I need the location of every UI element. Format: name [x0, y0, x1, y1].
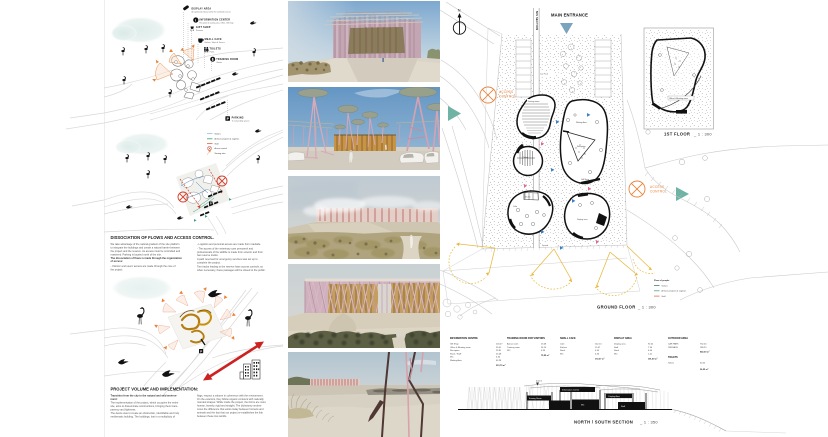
svg-text:The implementation of the proj: The implementation of the project, which… [111, 401, 179, 405]
svg-text:ment:: ment: [111, 397, 118, 401]
svg-text:Two tracks leading to the rese: Two tracks leading to the reserve have a… [197, 265, 264, 269]
svg-text:Waiting Area: Waiting Area [576, 121, 588, 124]
svg-text:Reception: Reception [577, 145, 586, 148]
svg-text:54.10: 54.10 [541, 347, 547, 349]
svg-text:25.08: 25.08 [496, 353, 502, 355]
svg-text:CONTROL: CONTROL [499, 95, 516, 99]
svg-text:two reserve tracks.: two reserve tracks. [197, 253, 219, 257]
svg-text:INFORMATION CENTER: INFORMATION CENTER [200, 19, 231, 22]
svg-text:- The access of the veterinary: - The access of the veterinary care pers… [197, 246, 254, 250]
svg-text:PROJECT VOLUME AND IMPLEMENTAT: PROJECT VOLUME AND IMPLEMENTATION: [111, 387, 199, 392]
svg-text:ACCESS: ACCESS [499, 90, 513, 94]
svg-text:Reception: Reception [450, 349, 460, 352]
svg-text:A path reserved for emergency: A path reserved for emergency services w… [197, 257, 258, 261]
svg-text:The dissociation of flows is m: The dissociation of flows is made throug… [111, 256, 183, 260]
svg-text:CAR PARK: CAR PARK [668, 343, 679, 346]
svg-text:732.00: 732.00 [700, 344, 707, 346]
svg-text:172,37 m²: 172,37 m² [595, 357, 605, 360]
svg-text:Spread: Spread [542, 244, 548, 247]
svg-text:Visitors: Visitors [216, 61, 222, 64]
svg-text:75,55 m²: 75,55 m² [541, 354, 550, 357]
svg-text:Animal caregivers & Logistics: Animal caregivers & Logistics [215, 138, 240, 141]
svg-text:Training room: Training room [507, 346, 520, 349]
svg-text:19.47: 19.47 [595, 347, 601, 349]
svg-text:emblematic building. The build: emblematic building. The buildings, lost… [111, 415, 176, 419]
svg-text:SMALL CAFE: SMALL CAFE [560, 337, 576, 340]
svg-text:mastered. Parking is located n: mastered. Parking is located north of th… [111, 252, 162, 256]
svg-text:Visitors: Visitors [662, 284, 668, 287]
svg-text:- Visitors' and users' access: - Visitors' and users' access are made t… [111, 264, 176, 268]
svg-text:CONTROL: CONTROL [650, 190, 667, 194]
svg-text:Car Park: Car Park [540, 74, 548, 76]
svg-text:N: N [458, 8, 461, 13]
svg-text:Information Centre: Information Centre [562, 389, 580, 392]
svg-text:142.14: 142.14 [595, 344, 602, 346]
svg-text:site, aims to disseminate cons: site, aims to disseminate constructions,… [111, 404, 179, 408]
svg-text:Visitors: Visitors [215, 132, 221, 135]
svg-text:Stock / Staff: Stock / Staff [450, 352, 462, 355]
svg-text:flags, respect a volume in coh: flags, respect a volume in coherence wit… [197, 393, 264, 397]
svg-text:Toilets: Toilets [668, 362, 674, 365]
svg-text:36,25 m²: 36,25 m² [700, 368, 709, 371]
svg-text:_ 1 : 350: _ 1 : 350 [639, 420, 658, 425]
svg-text:TERRACE: TERRACE [668, 346, 679, 349]
svg-text:23.81: 23.81 [496, 350, 502, 352]
svg-text:_ 1 : 300: _ 1 : 300 [637, 305, 656, 310]
svg-text:NORTH / SOUTH SECTION: NORTH / SOUTH SECTION [574, 420, 633, 425]
svg-text:human, homely, rigid and strai: human, homely, rigid and straight. The d… [197, 404, 262, 408]
svg-text:Office & Meeting room: Office & Meeting room [450, 346, 471, 349]
svg-text:GROUND FLOOR: GROUND FLOOR [597, 305, 636, 310]
svg-text:DISPLAY AREA: DISPLAY AREA [614, 337, 632, 340]
svg-text:Training Room: Training Room [529, 398, 542, 400]
svg-text:100.27: 100.27 [496, 344, 503, 346]
svg-text:Transition from the city to th: Transition from the city to the natural … [111, 393, 178, 397]
svg-text:DISSOCIATION OF FLOWS AND ACCE: DISSOCIATION OF FLOWS AND ACCESS CONTROL… [111, 235, 215, 240]
svg-text:Staff: Staff [215, 142, 219, 145]
svg-text:N/S SECTION: N/S SECTION [535, 11, 539, 30]
svg-text:rounded shapes. While inside t: rounded shapes. While inside the project… [197, 400, 267, 404]
svg-text:TRAINING ROOM: TRAINING ROOM [216, 58, 238, 61]
svg-text:_ 1 : 300: _ 1 : 300 [693, 132, 712, 137]
svg-text:WC: WC [581, 405, 585, 407]
svg-text:92.02: 92.02 [648, 344, 654, 346]
svg-text:Display Area: Display Area [609, 395, 621, 398]
svg-text:animals and the fact that our: animals and the fact that our project re… [197, 410, 264, 414]
svg-text:WC: WC [507, 350, 511, 352]
svg-text:- Logistics and personal acces: - Logistics and personal access are made… [197, 242, 261, 246]
svg-text:WC: WC [614, 353, 618, 355]
svg-text:922,30 m²: 922,30 m² [700, 350, 710, 353]
svg-text:TOILETS: TOILETS [210, 48, 222, 50]
svg-text:Staff: Staff [662, 295, 666, 298]
svg-text:Cafe: Cafe [513, 206, 517, 208]
svg-text:Training rooms: Training rooms [528, 101, 540, 103]
svg-text:parency and lightness.: parency and lightness. [111, 407, 137, 411]
svg-text:of access:: of access: [111, 259, 124, 263]
svg-text:TRAINING ROOM FOR VISITORS: TRAINING ROOM FOR VISITORS [507, 337, 545, 340]
svg-text:professionals of the wildlife: professionals of the wildlife is made fr… [197, 250, 263, 254]
svg-text:to integrate the buildings and: to integrate the buildings and create a … [111, 246, 181, 250]
svg-text:We take advantage of the natur: We take advantage of the natural gradien… [111, 242, 180, 246]
svg-text:313,79 m²: 313,79 m² [496, 364, 506, 367]
svg-text:DISPLAY AREA: DISPLAY AREA [192, 7, 212, 10]
svg-text:Staff: Staff [614, 346, 619, 349]
svg-text:To suit parking spaces: To suit parking spaces [232, 120, 250, 123]
svg-text:30.25: 30.25 [700, 363, 706, 365]
svg-text:Waiting Area: Waiting Area [450, 359, 463, 362]
svg-text:59.01: 59.01 [496, 347, 502, 349]
svg-text:cores the difference that exis: cores the difference that exists today b… [197, 407, 264, 411]
svg-text:between these two worlds.: between these two worlds. [197, 414, 227, 418]
svg-text:Public: Public [210, 51, 215, 53]
svg-text:Toilets: Toilets [523, 156, 528, 159]
svg-text:Kitchen: Kitchen [560, 346, 568, 349]
svg-text:Kitchen: Kitchen [525, 196, 531, 199]
svg-text:OUTDOOR AREA: OUTDOOR AREA [668, 337, 688, 340]
svg-text:Viewing sites: Viewing sites [215, 152, 226, 155]
svg-text:Display area: Display area [614, 343, 626, 346]
svg-text:Flow of people: Flow of people [654, 280, 670, 282]
svg-text:i: i [195, 18, 196, 22]
svg-text:Display area: Display area [577, 218, 588, 221]
svg-text:Kitchen, Toilets & Terrace: Kitchen, Toilets & Terrace [205, 41, 225, 44]
svg-text:the project: the project [111, 267, 123, 271]
svg-text:Gift Shop: Gift Shop [450, 343, 460, 346]
svg-text:P: P [200, 349, 202, 353]
svg-text:WC: WC [560, 353, 564, 355]
svg-text:4.00 m: 4.00 m [536, 381, 542, 383]
svg-text:Animal caregivers & Logistics: Animal caregivers & Logistics [662, 290, 687, 293]
svg-text:Office & Meeting room: Office & Meeting room [669, 97, 688, 100]
svg-text:when necessary, these passages: when necessary, these passages will be c… [197, 268, 266, 272]
svg-text:Staff: Staff [621, 405, 626, 408]
svg-text:Access control: Access control [215, 147, 228, 150]
svg-text:101,69 m²: 101,69 m² [648, 357, 658, 360]
svg-text:PARKING: PARKING [232, 117, 244, 120]
svg-text:188.29: 188.29 [700, 347, 707, 349]
svg-text:On the exteriors, they follow: On the exteriors, they follow organic co… [197, 397, 264, 401]
svg-text:Reception & waiting area, Offi: Reception & waiting area, Office, Gift s… [200, 22, 234, 25]
svg-text:Aireas room: Aireas room [507, 343, 518, 346]
svg-text:13.08: 13.08 [541, 344, 547, 346]
svg-text:INFORMATION CENTRE: INFORMATION CENTRE [450, 337, 478, 340]
svg-text:SMALL CAFE: SMALL CAFE [205, 38, 222, 41]
svg-text:1ST FLOOR: 1ST FLOOR [664, 132, 690, 137]
svg-text:The desire was to create an ob: The desire was to create an obstruction,… [111, 411, 180, 415]
svg-text:GIFT SHOP: GIFT SHOP [196, 27, 211, 29]
svg-text:43.28: 43.28 [496, 360, 502, 362]
svg-text:Souvenir: Souvenir [196, 30, 203, 32]
svg-text:An optimized chill-out within: An optimized chill-out within the wetlan… [192, 10, 231, 13]
svg-text:MAIN ENTRANCE: MAIN ENTRANCE [551, 13, 588, 18]
svg-text:WC: WC [450, 357, 454, 359]
svg-text:P: P [210, 201, 212, 205]
svg-text:complete the project.: complete the project. [197, 260, 221, 264]
svg-text:TOILETS: TOILETS [668, 357, 678, 359]
svg-text:the project and the reserve. A: the project and the reserve. As access m… [111, 249, 181, 253]
